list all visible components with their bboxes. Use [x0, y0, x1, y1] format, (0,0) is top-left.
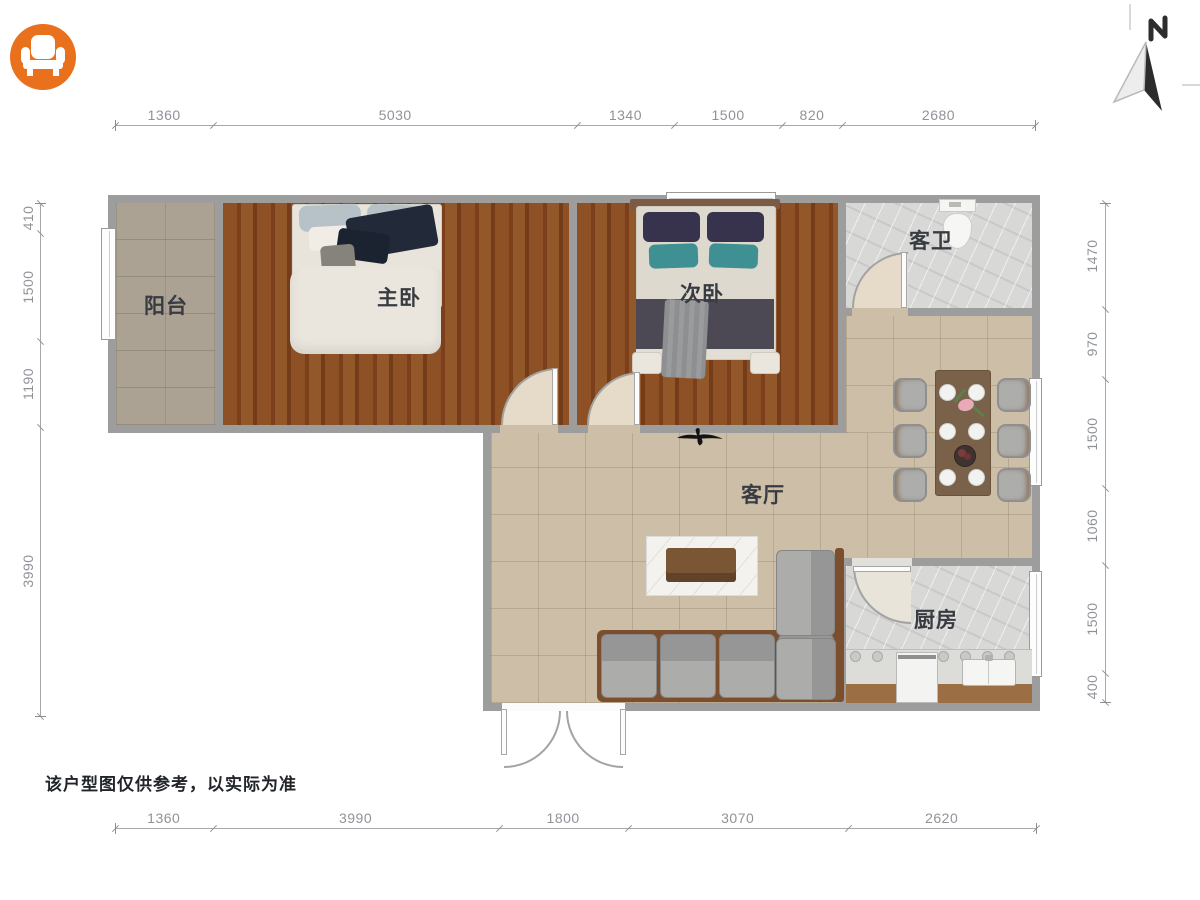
dimension-label: 1500 — [712, 107, 745, 123]
dimension-label: 820 — [800, 107, 825, 123]
dimension-tick — [35, 716, 46, 717]
dimension-label: 1500 — [1084, 602, 1100, 635]
dimension-line — [40, 203, 41, 716]
dimension-label: 3990 — [339, 810, 372, 826]
dimension-label: 1360 — [147, 810, 180, 826]
dimension-tick — [1100, 203, 1111, 204]
dimension-line — [115, 828, 1036, 829]
dimension-label: 1500 — [20, 270, 36, 303]
dimension-tick — [115, 823, 116, 834]
dimension-label: 970 — [1084, 332, 1100, 357]
dimension-line — [1105, 203, 1106, 702]
dimension-label: 2620 — [925, 810, 958, 826]
dimension-label: 400 — [1084, 675, 1100, 700]
dimension-tick — [1100, 702, 1111, 703]
dimension-tick — [35, 203, 46, 204]
dimension-label: 3990 — [20, 555, 36, 588]
dimension-label: 410 — [20, 205, 36, 230]
dimension-tick — [115, 120, 116, 131]
dimension-tick — [1035, 120, 1036, 131]
dimension-label: 1800 — [547, 810, 580, 826]
dimension-rulers: 1360503013401500820268013603990180030702… — [0, 0, 1200, 900]
dimension-tick — [1036, 823, 1037, 834]
dimension-label: 3070 — [721, 810, 754, 826]
dimension-label: 1340 — [609, 107, 642, 123]
floor-plan-page: 阳台 主卧 次卧 客卫 客厅 厨房 该户型图仅供参考，以实际为准 1360503… — [0, 0, 1200, 900]
dimension-label: 1500 — [1084, 417, 1100, 450]
dimension-label: 1470 — [1084, 240, 1100, 273]
dimension-label: 1060 — [1084, 510, 1100, 543]
dimension-label: 1360 — [148, 107, 181, 123]
dimension-label: 5030 — [379, 107, 412, 123]
dimension-label: 1190 — [20, 368, 36, 400]
dimension-label: 2680 — [922, 107, 955, 123]
